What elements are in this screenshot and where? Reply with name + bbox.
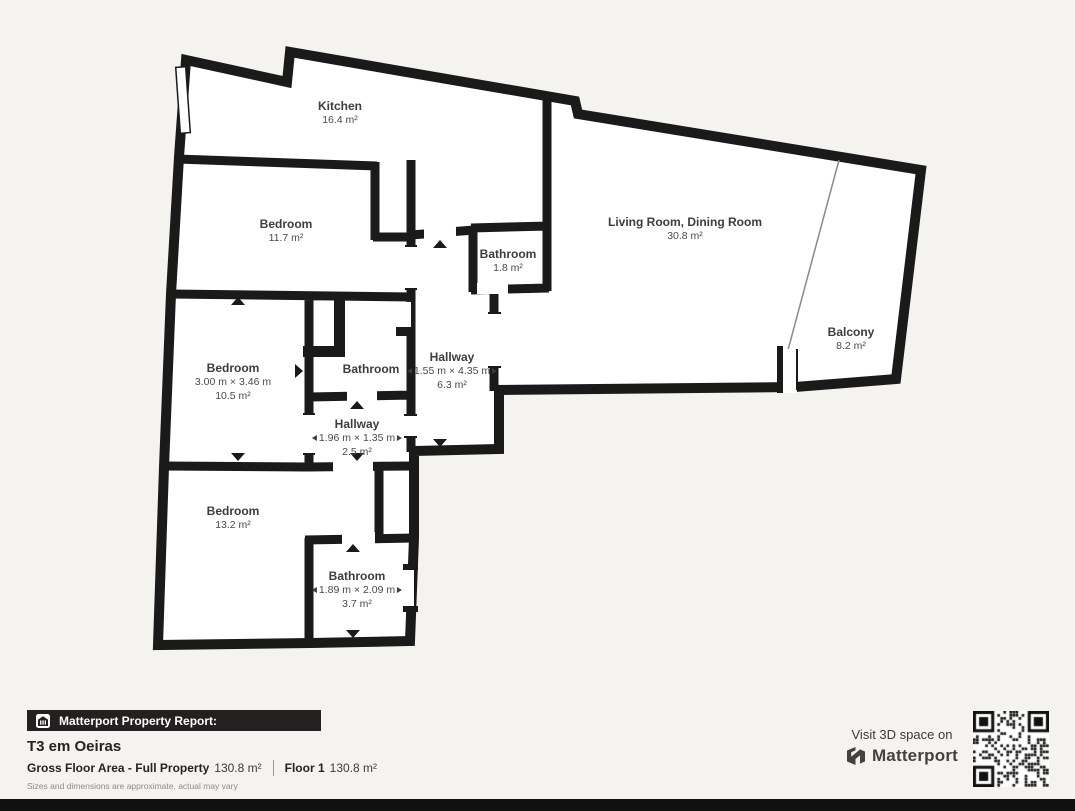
- stats-divider: [273, 760, 274, 776]
- report-banner-label: Matterport Property Report:: [59, 714, 217, 728]
- floor-area-stats: Gross Floor Area - Full Property 130.8 m…: [27, 760, 377, 776]
- bottom-bar: [0, 799, 1075, 811]
- matterport-logo-icon: [846, 746, 866, 766]
- qr-code: [973, 711, 1049, 787]
- disclaimer-text: Sizes and dimensions are approximate, ac…: [27, 781, 238, 791]
- house-report-icon: [36, 714, 50, 728]
- property-title: T3 em Oeiras: [27, 738, 121, 755]
- brand-row: Matterport: [846, 746, 958, 766]
- floor-label: Floor 1: [285, 761, 325, 775]
- gross-floor-value: 130.8 m²: [214, 761, 261, 775]
- floorplan-outline: [158, 52, 921, 645]
- visit-3d-cta: Visit 3D space on Matterport: [846, 727, 958, 766]
- floorplan-canvas: [0, 0, 1075, 811]
- gross-floor-label: Gross Floor Area - Full Property: [27, 761, 209, 775]
- brand-name: Matterport: [872, 746, 958, 766]
- report-banner: Matterport Property Report:: [27, 710, 321, 731]
- floor-value: 130.8 m²: [330, 761, 377, 775]
- visit-3d-text: Visit 3D space on: [852, 727, 953, 742]
